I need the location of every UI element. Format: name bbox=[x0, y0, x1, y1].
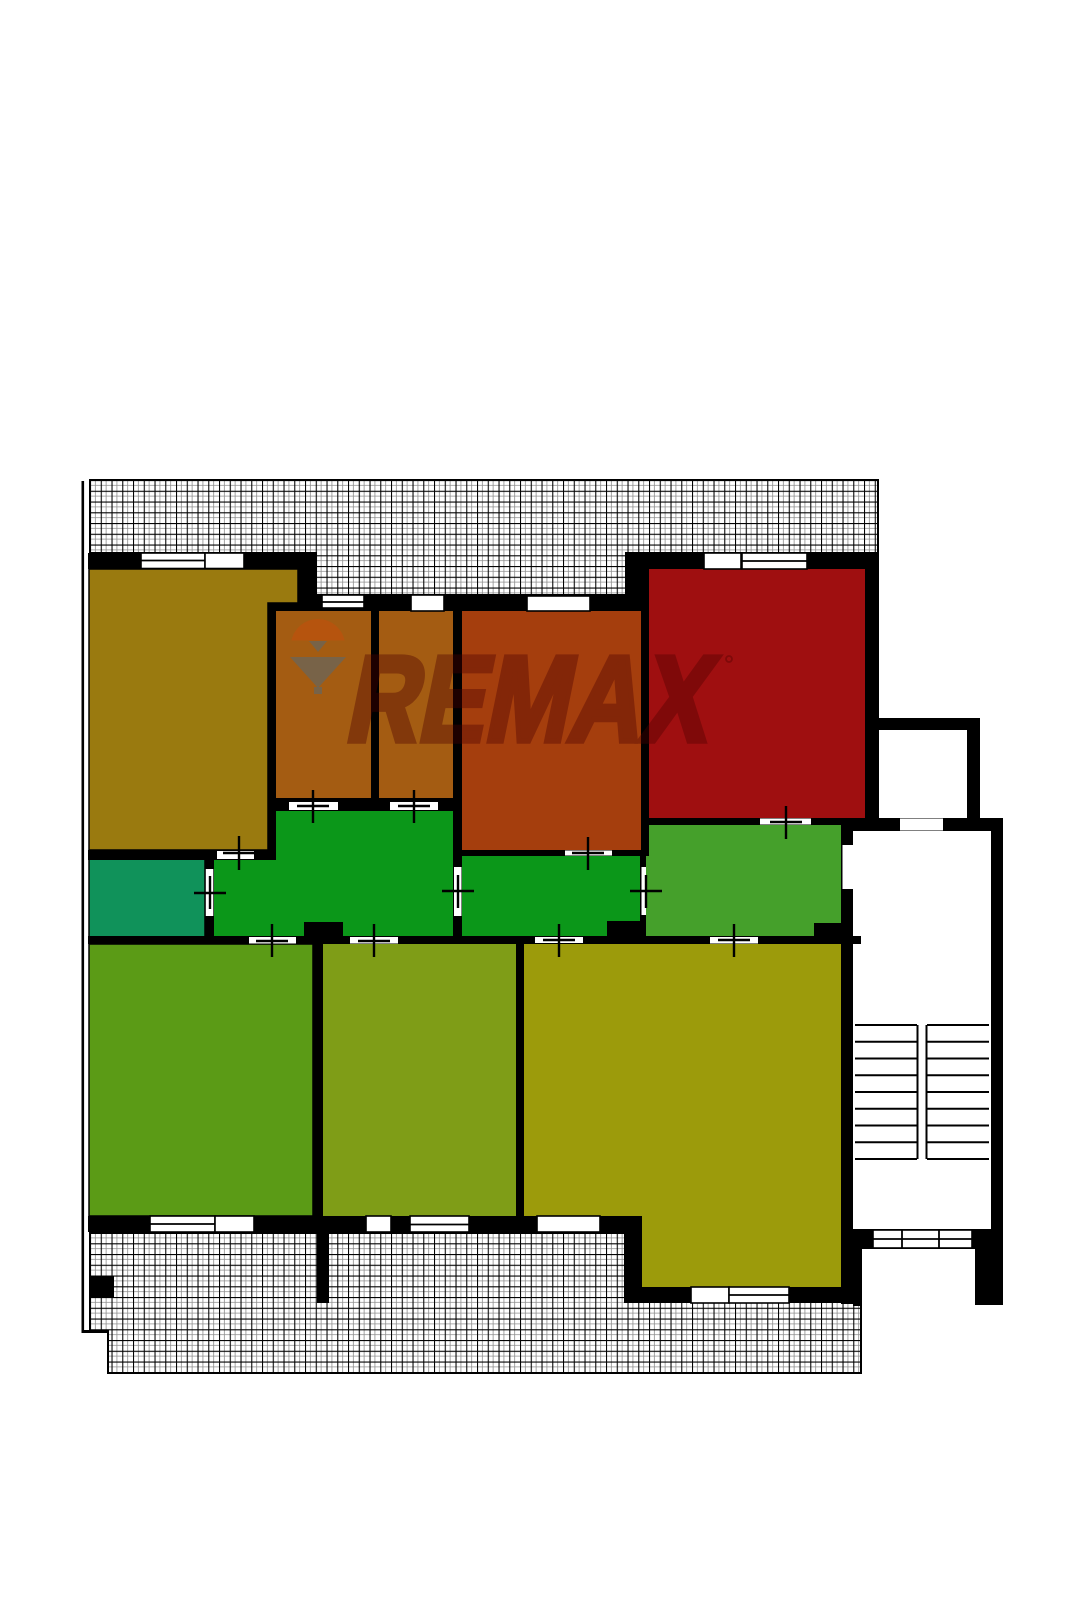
svg-text:REMAX: REMAX bbox=[338, 631, 728, 768]
